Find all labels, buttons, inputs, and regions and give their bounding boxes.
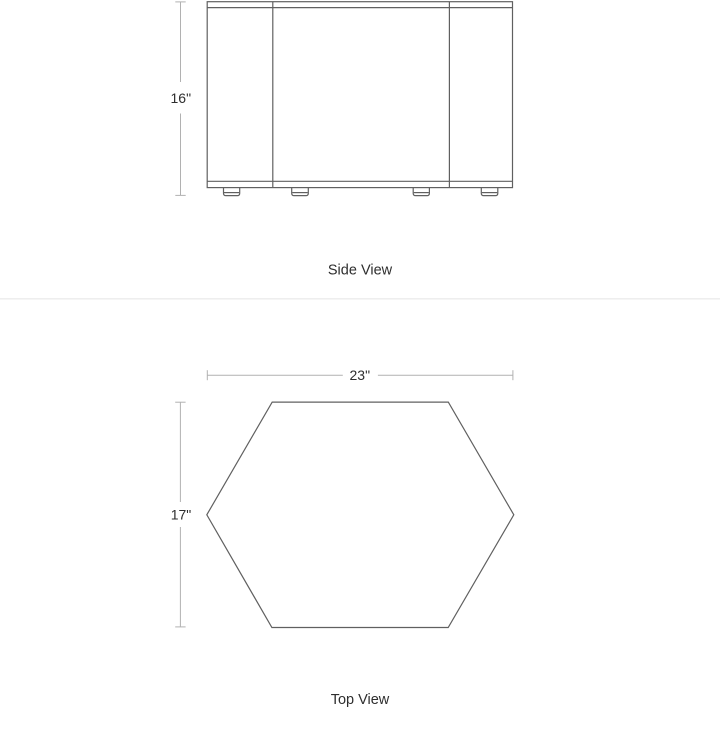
- svg-text:Side View: Side View: [328, 263, 393, 279]
- svg-text:Top View: Top View: [331, 692, 390, 708]
- svg-text:23": 23": [350, 367, 371, 383]
- svg-text:16": 16": [171, 90, 192, 106]
- svg-text:17": 17": [171, 507, 192, 523]
